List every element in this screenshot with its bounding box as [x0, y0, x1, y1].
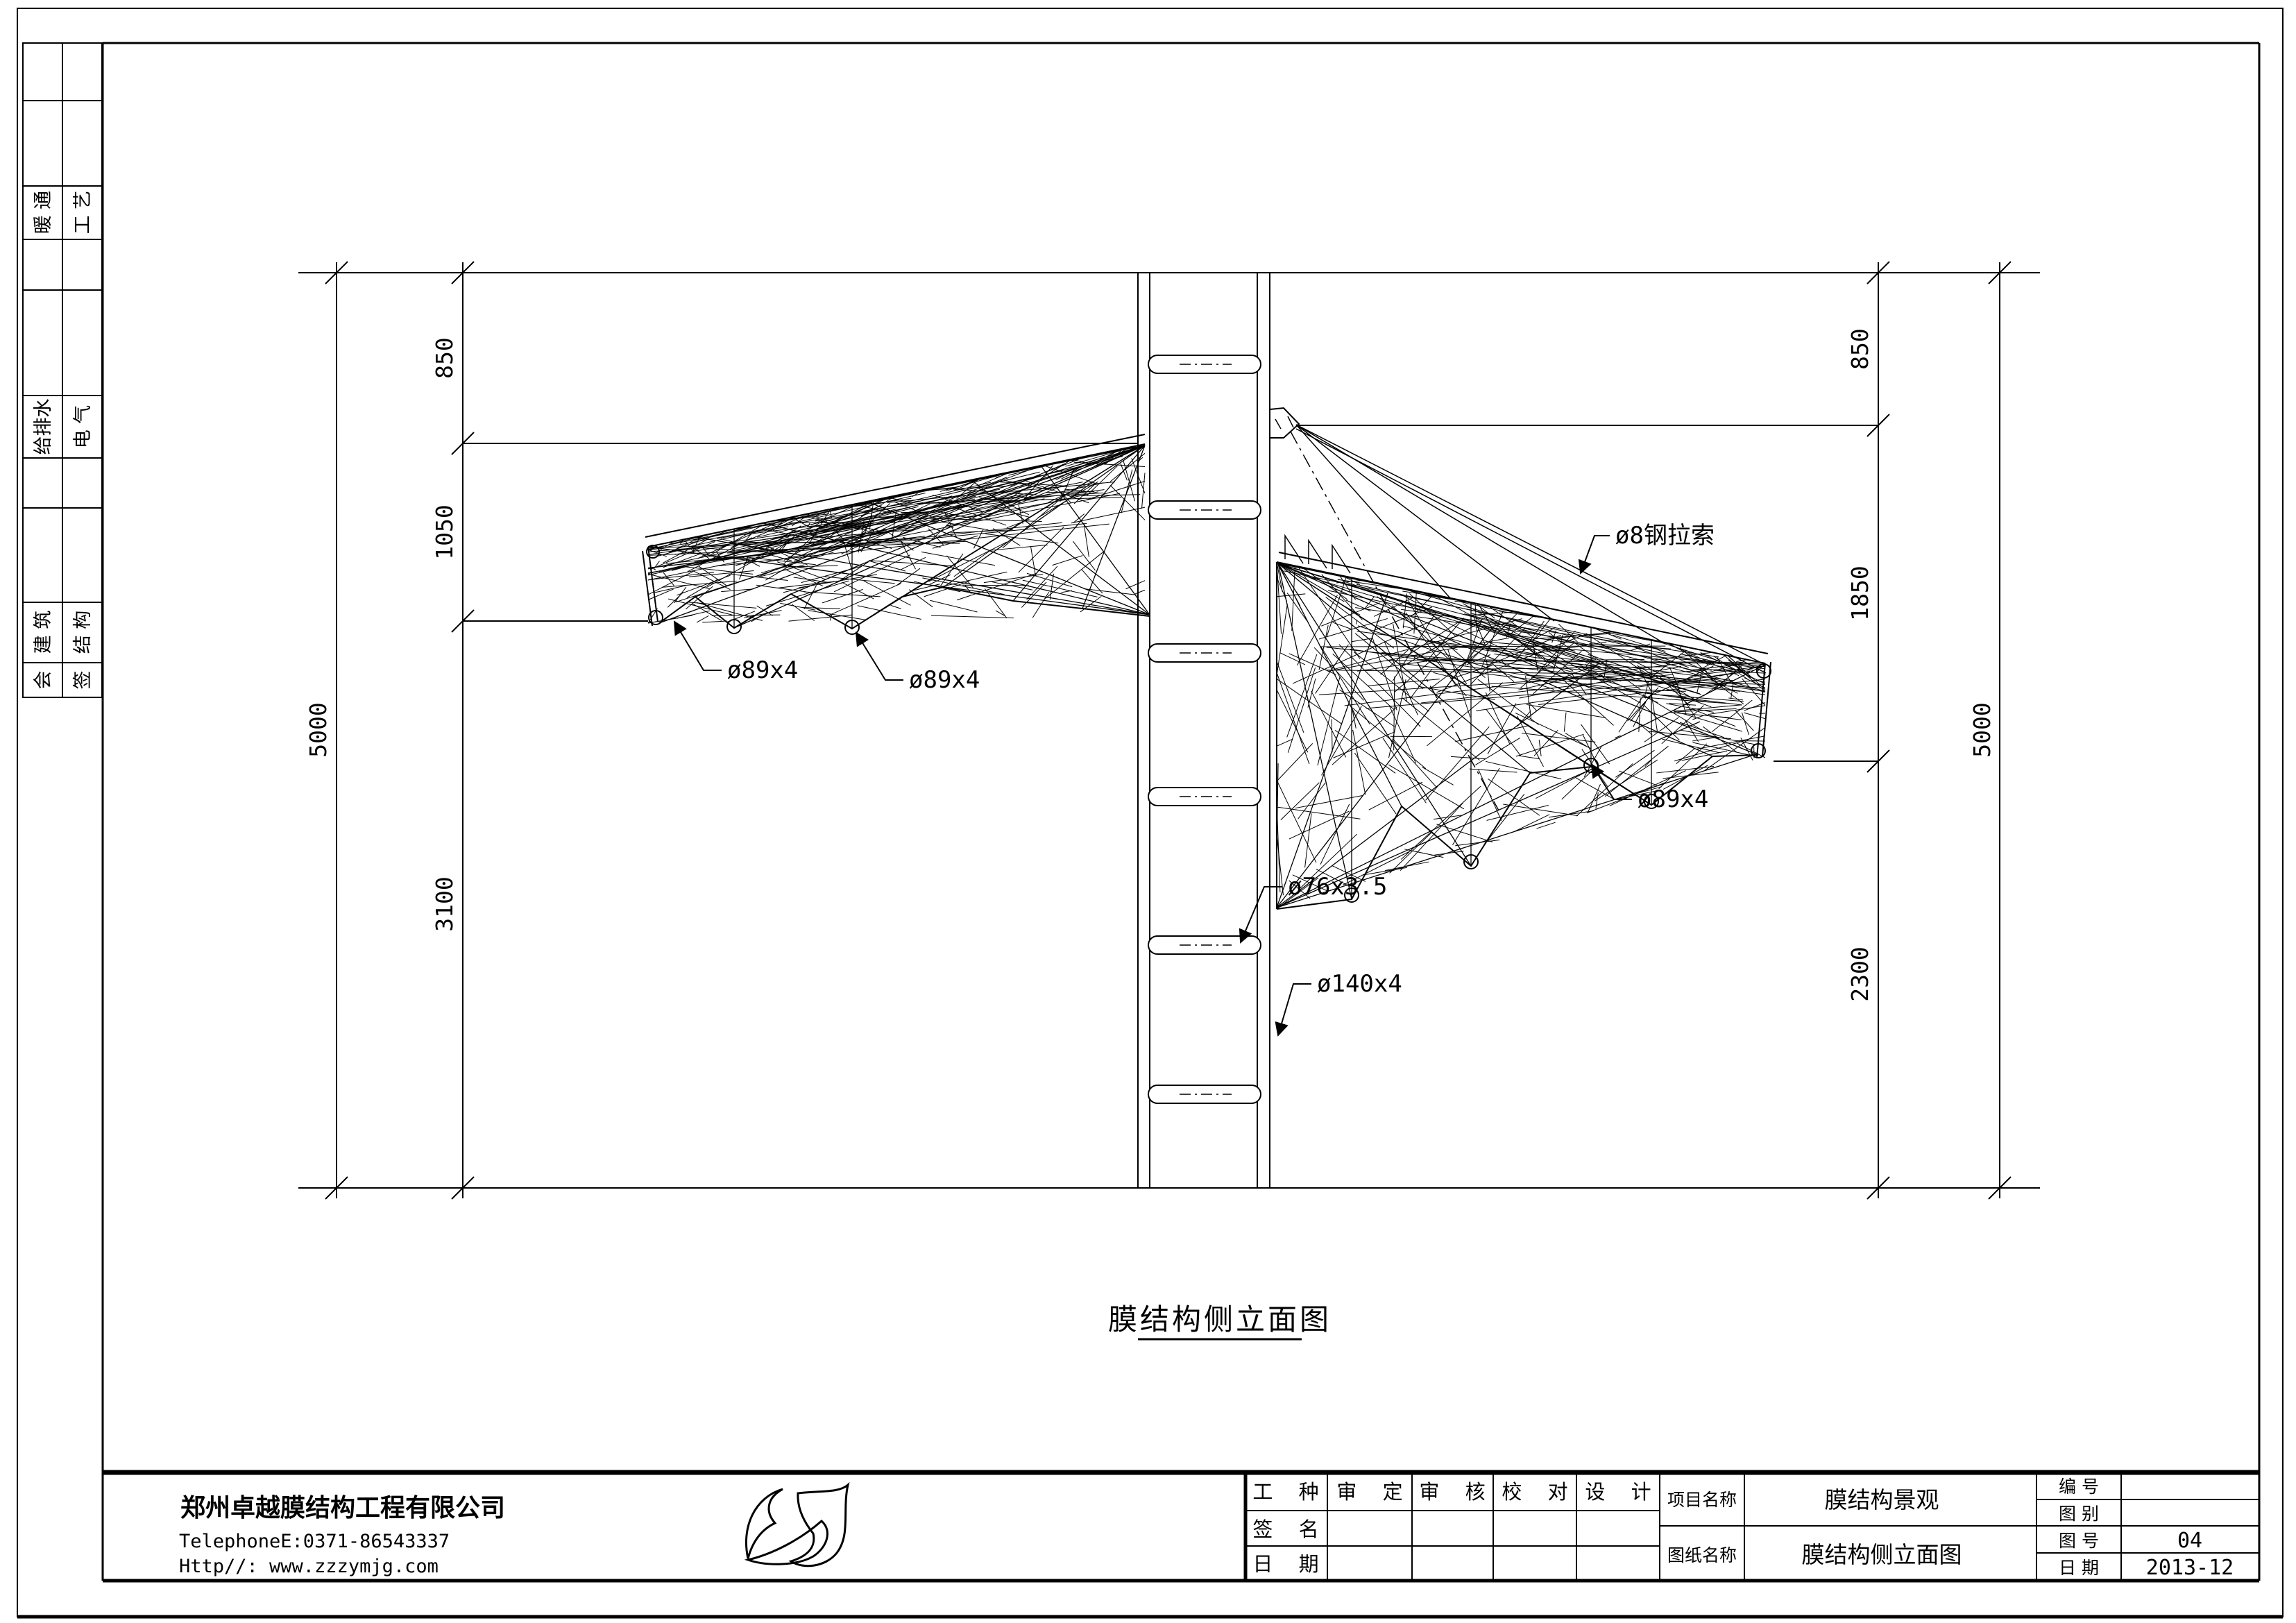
dim-left-1050: 1050: [431, 504, 458, 559]
dim-right-1850: 1850: [1846, 566, 1873, 620]
dim-right-850: 850: [1846, 328, 1873, 370]
meta-date-label: 日 期: [2059, 1558, 2099, 1578]
drawing-name-label: 图纸名称: [1667, 1545, 1737, 1565]
sidebar-sign-label: 签: [72, 671, 94, 690]
approval-header-design: 设 计: [1585, 1480, 1660, 1504]
company-phone: TelephoneE:0371-86543337: [179, 1531, 450, 1552]
left-membrane-mesh: [648, 444, 1150, 629]
dim-right-outer: 5000: [1968, 702, 1996, 757]
sidebar-plumbing-label: 给排水: [33, 399, 54, 455]
annotation-pipe-right: ø89x4: [1638, 785, 1708, 813]
title-block: 郑州卓越膜结构工程有限公司 TelephoneE:0371-86543337 H…: [103, 1472, 2259, 1581]
annotation-mast: ø140x4: [1317, 970, 1402, 998]
right-membrane-mesh: [1277, 562, 1765, 909]
approval-header-trade: 工 种: [1252, 1480, 1328, 1504]
sidebar-arch-label: 建 筑: [33, 611, 54, 654]
approval-date-label: 日 期: [1252, 1552, 1328, 1576]
approval-sign-label: 签 名: [1252, 1518, 1328, 1541]
mast: [1138, 273, 1299, 1188]
mast-rungs: [1148, 355, 1261, 1103]
approval-header-review: 审 核: [1419, 1480, 1495, 1504]
drawing-name-value: 膜结构侧立面图: [1802, 1541, 1962, 1568]
annotation-pipe-left-2: ø89x4: [909, 666, 980, 694]
company-name: 郑州卓越膜结构工程有限公司: [180, 1494, 505, 1522]
signature-bar: 暖 通 工 艺 给排水 电 气 建 筑 结 构 会 签: [23, 43, 102, 697]
drawing-title: 膜结构侧立面图: [1108, 1302, 1332, 1336]
dim-left-850: 850: [431, 337, 458, 379]
annotation-rung: ø76x3.5: [1288, 873, 1387, 901]
meta-number-label: 编 号: [2059, 1477, 2099, 1497]
sidebar-hvac-label: 暖 通: [33, 191, 54, 235]
annotation-cable: ø8钢拉索: [1615, 522, 1715, 550]
meta-sheetno-label: 图 号: [2059, 1531, 2099, 1551]
dim-right-2300: 2300: [1846, 946, 1873, 1001]
dimension-lines: 5000 850 1050 3100 850 1850 2300 5000: [298, 262, 2040, 1199]
sidebar-process-label: 工 艺: [72, 191, 94, 235]
left-membrane: [643, 434, 1150, 634]
approval-header-check: 校 对: [1502, 1480, 1577, 1504]
sidebar-electric-label: 电 气: [72, 405, 94, 449]
cable-bracket: [1270, 408, 1299, 438]
company-logo: [746, 1485, 848, 1566]
dim-left-outer: 5000: [305, 702, 332, 757]
project-name-value: 膜结构景观: [1825, 1486, 1939, 1513]
annotation-pipe-left-1: ø89x4: [727, 656, 798, 684]
sidebar-joint-label: 会: [33, 671, 54, 690]
project-name-label: 项目名称: [1667, 1490, 1737, 1510]
right-membrane: [1277, 536, 1771, 909]
meta-category-label: 图 别: [2059, 1504, 2099, 1524]
meta-date-value: 2013-12: [2146, 1556, 2234, 1580]
sidebar-structure-label: 结 构: [72, 611, 94, 654]
approval-header-approve: 审 定: [1336, 1480, 1412, 1504]
dimension-ticks: [325, 262, 2011, 1199]
drawing-sheet: 暖 通 工 艺 给排水 电 气 建 筑 结 构 会 签 5000 850 105…: [0, 0, 2296, 1623]
meta-sheetno-value: 04: [2177, 1529, 2202, 1553]
company-website: Http//: www.zzzymjg.com: [179, 1556, 439, 1577]
drawing-title-group: 膜结构侧立面图: [1108, 1302, 1332, 1339]
dim-left-3100: 3100: [431, 876, 458, 931]
cad-canvas: 暖 通 工 艺 给排水 电 气 建 筑 结 构 会 签 5000 850 105…: [0, 0, 2296, 1623]
